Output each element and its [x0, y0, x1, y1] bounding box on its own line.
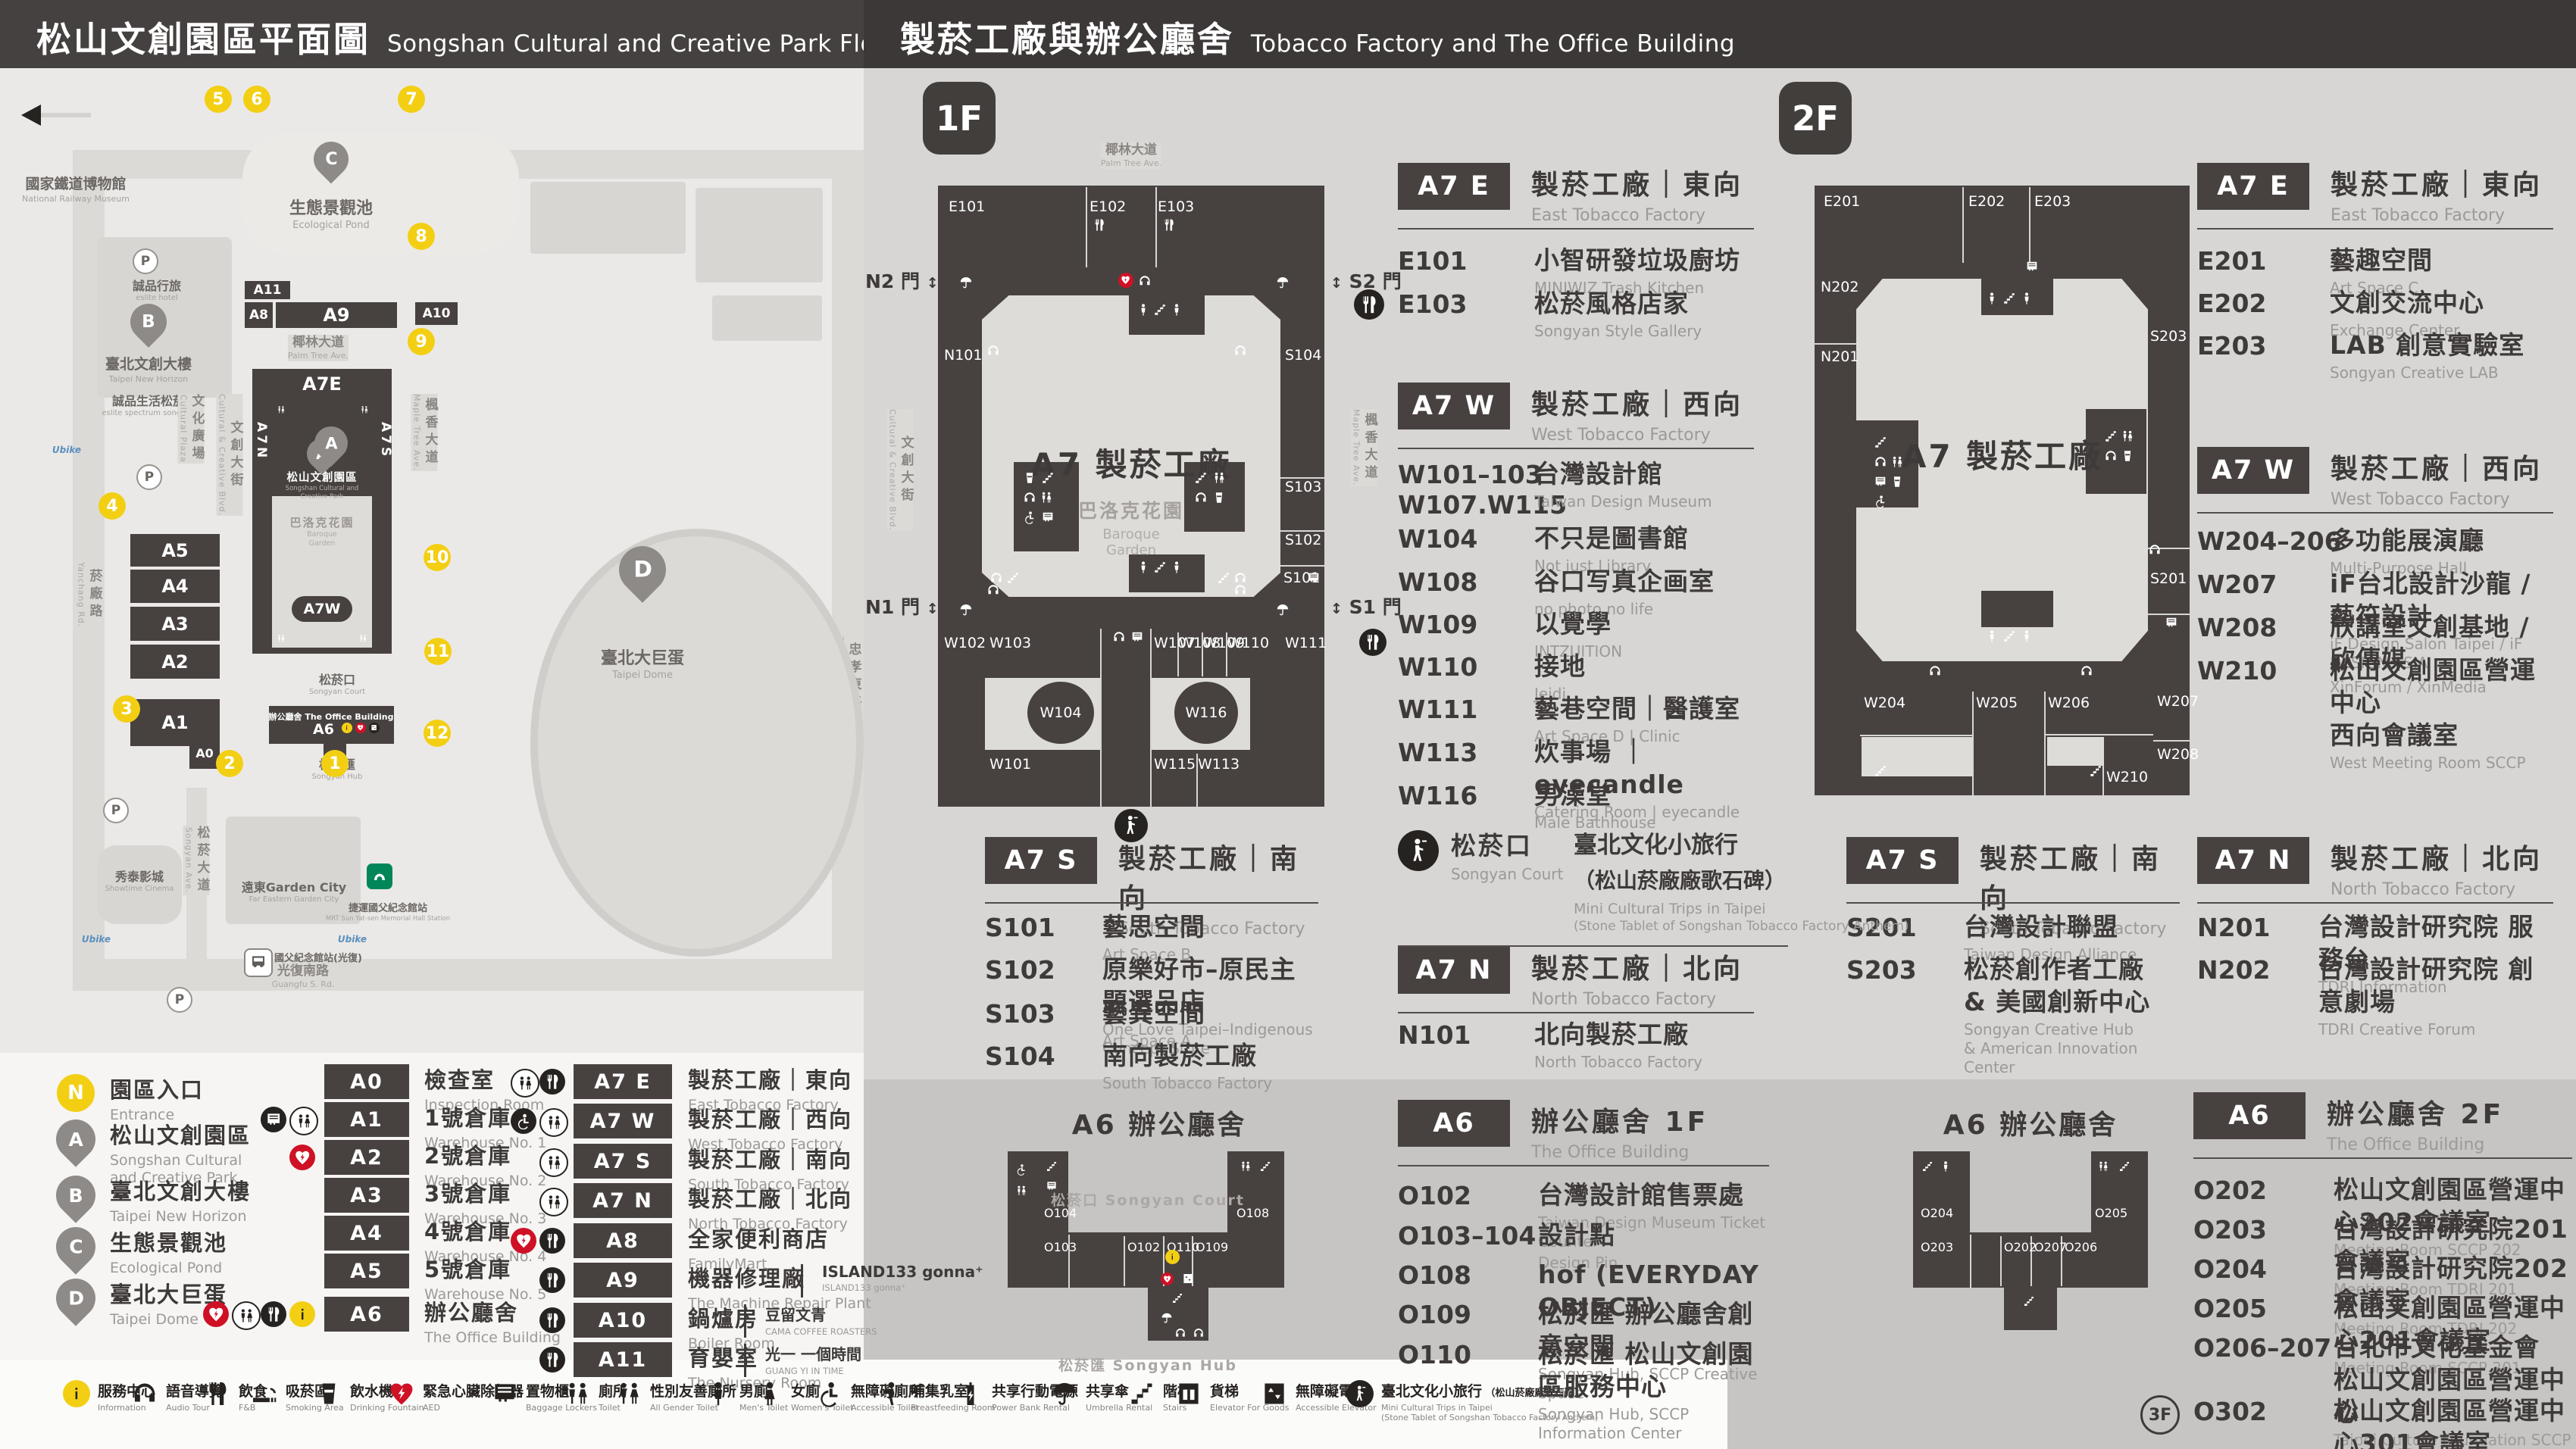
- stairs-icon: [1874, 436, 1887, 449]
- section-divider: [2197, 902, 2553, 904]
- plan-room-O206: O206: [2065, 1240, 2097, 1254]
- person-icon: [1985, 292, 1999, 305]
- plan-room-E202: E202: [1968, 193, 2005, 210]
- plan-divider: [2029, 187, 2030, 263]
- section-code: A7 N: [2197, 837, 2309, 884]
- fnb-icon: [1359, 629, 1386, 656]
- room-code: W108: [1398, 567, 1477, 598]
- plan-room-W206: W206: [2048, 695, 2090, 711]
- stairs-icon: [1259, 1160, 1271, 1173]
- plan-room-W104: W104: [1027, 682, 1094, 744]
- plan-room-W207: W207: [2157, 693, 2199, 710]
- section-title-en: West Tobacco Factory: [1531, 426, 1743, 445]
- room-code: O110: [1398, 1340, 1471, 1370]
- legend-code-A3: A3: [324, 1178, 409, 1213]
- plan-court: [2047, 737, 2104, 766]
- toilet-icon: [511, 1069, 539, 1098]
- locker-icon: [2165, 616, 2178, 629]
- section-title-en: West Tobacco Factory: [2331, 490, 2543, 509]
- legend-sub-brand: 光一 一個時間GUANG YI IN TIME: [765, 1342, 861, 1376]
- plan-room-W210: W210: [2106, 769, 2148, 785]
- legend-code-A2: A2: [324, 1140, 409, 1175]
- audio-icon: [131, 1380, 158, 1407]
- section-A6: A6辦公廳舍 1FThe Office BuildingO102台灣設計館售票處…: [1398, 1100, 1769, 1162]
- legend-sub-brand: ISLAND133 gonna⁺ISLAND133 gonna⁺: [822, 1263, 983, 1293]
- legend-code-A5: A5: [324, 1254, 409, 1288]
- legend-code-A7E: A7 E: [574, 1064, 672, 1099]
- accessible-icon: [1015, 1163, 1027, 1176]
- room-code: W113: [1398, 738, 1477, 768]
- plan-room-W102: W102: [944, 635, 986, 651]
- plan-room-N202: N202: [1821, 279, 1859, 295]
- plan-room-S103: S103: [1285, 479, 1321, 495]
- a6-plan-title: A6 辦公廳舍: [1072, 1103, 1246, 1142]
- aed-icon: [511, 1228, 536, 1254]
- plan-room-W111: W111: [1285, 635, 1327, 651]
- locker-icon: [1874, 475, 1887, 489]
- legend-pin-label: 園區入口Entrance: [110, 1073, 204, 1124]
- section-header: A7 N製菸工廠｜北向North Tobacco Factory: [1398, 947, 1754, 1009]
- section-title-zh: 製菸工廠｜西向: [2331, 447, 2543, 486]
- aed-icon: [289, 1145, 315, 1170]
- plan-divider: [1962, 187, 1964, 263]
- plan-divider: [1280, 565, 1324, 567]
- plan-room-O207: O207: [2034, 1240, 2067, 1254]
- songyan-court-name: 松菸口Songyan Court: [1451, 826, 1563, 883]
- section-A7E: A7 E製菸工廠｜東向East Tobacco FactoryE201藝趣空間A…: [2197, 163, 2553, 225]
- door-label-N2門: N2 門 ↕: [865, 267, 939, 294]
- smoke-icon: [251, 1380, 278, 1407]
- room-code: W208: [2197, 613, 2277, 643]
- section-title-zh: 製菸工廠｜北向: [1531, 947, 1743, 986]
- floor-badge-2F: 2F: [1779, 82, 1852, 155]
- room-code: N201: [2197, 913, 2271, 943]
- room-code: O108: [1398, 1260, 1471, 1291]
- info-icon: [1165, 1250, 1180, 1264]
- toilet-icon: [615, 1380, 642, 1407]
- fork-icon: [539, 1228, 565, 1254]
- room-code: W110: [1398, 652, 1477, 682]
- plan-room-W116: W116: [1174, 682, 1238, 744]
- door-label-S2門: ↕ S2 門: [1330, 267, 1402, 294]
- plan-divider: [1124, 1236, 1125, 1286]
- locker-icon: [261, 1107, 286, 1132]
- legend-code-A8: A8: [574, 1223, 672, 1258]
- stairs-icon: [1006, 571, 1020, 585]
- plan-room-S203: S203: [2150, 328, 2187, 345]
- legend-sub-divider: [801, 1264, 803, 1298]
- section-divider: [1398, 1012, 1754, 1013]
- audio-icon: [986, 583, 1000, 597]
- plan-room-O205: O205: [2095, 1206, 2127, 1220]
- room-code: E202: [2197, 289, 2266, 319]
- plan-divider: [1860, 735, 1972, 736]
- plan-room-O203: O203: [1921, 1240, 1953, 1254]
- room-label: 台灣設計研究院 創意劇場TDRI Creative Forum: [2318, 954, 2553, 1039]
- door-label-N1門: N1 門 ↕: [865, 592, 939, 620]
- section-header: A7 W製菸工廠｜西向West Tobacco Factory: [2197, 447, 2553, 509]
- audio-icon: [1112, 630, 1126, 644]
- stairs-icon: [1128, 1380, 1155, 1407]
- trip-icon: [1346, 1380, 1374, 1407]
- a6-plan-title: A6 辦公廳舍: [1943, 1103, 2118, 1142]
- women-icon: [756, 1380, 783, 1407]
- fork-icon: [539, 1347, 565, 1372]
- plan-divider: [1086, 187, 1087, 267]
- section-code: A7 E: [1398, 163, 1510, 210]
- room-code: O203: [2193, 1215, 2267, 1245]
- legend-code-A7N: A7 N: [574, 1183, 672, 1218]
- section-header: A6辦公廳舍 1FThe Office Building: [1398, 1100, 1769, 1162]
- water-icon: [1023, 471, 1036, 485]
- room-code: N101: [1398, 1020, 1471, 1051]
- aed-icon: [388, 1380, 415, 1407]
- stairs-icon: [2002, 629, 2016, 643]
- plan-divider: [1815, 343, 1856, 345]
- section-divider: [985, 902, 1318, 904]
- locker-icon: [1307, 571, 1321, 585]
- section-code: A6: [2193, 1092, 2306, 1139]
- section-title-en: The Office Building: [2327, 1135, 2504, 1154]
- audio-icon: [1233, 571, 1247, 585]
- section-A7S: A7 S製菸工廠｜南向South Tobacco FactoryS101藝思空間…: [985, 837, 1318, 938]
- room-code: S104: [985, 1041, 1055, 1072]
- room-code: S101: [985, 913, 1055, 943]
- room-code: O202: [2193, 1176, 2267, 1206]
- section-title-en: North Tobacco Factory: [1531, 990, 1743, 1009]
- room-code: S203: [1846, 955, 1917, 985]
- section-A7N: A7 N製菸工廠｜北向North Tobacco FactoryN101北向製菸…: [1398, 947, 1754, 1009]
- plan-divider: [1155, 187, 1157, 267]
- audio-icon: [989, 571, 1003, 585]
- room-code: W111: [1398, 695, 1477, 725]
- stairs-icon: [1153, 303, 1167, 317]
- elevator-icon: [1182, 1273, 1194, 1285]
- plan-divider: [2046, 734, 2153, 735]
- room-code: E101: [1398, 246, 1467, 276]
- toilet-icon: [564, 1380, 591, 1407]
- section-code: A7 E: [2197, 163, 2309, 210]
- plan-center-label: A7 製菸工廠: [1902, 431, 2102, 477]
- room-code: W109: [1398, 610, 1477, 640]
- legend-code-A11: A11: [574, 1342, 672, 1377]
- room-code: W204–206: [2197, 526, 2342, 557]
- section-header: A7 E製菸工廠｜東向East Tobacco Factory: [2197, 163, 2553, 225]
- water-icon: [1890, 475, 1904, 489]
- water-icon: [1212, 491, 1226, 504]
- section-divider: [1398, 228, 1754, 230]
- songyan-divider: [1398, 945, 1788, 947]
- section-title-zh: 製菸工廠｜南向: [1118, 837, 1318, 916]
- legend-sub-divider: [744, 1344, 746, 1377]
- room-code: O204: [2193, 1254, 2267, 1285]
- audio-icon: [1233, 583, 1247, 597]
- toilet-icon: [2121, 429, 2134, 443]
- plan-divider: [2148, 614, 2190, 615]
- plan-divider: [2153, 740, 2190, 742]
- plan-road-label: 椰林大道Palm Tree Ave.: [1101, 142, 1161, 169]
- section-header: A6辦公廳舍 2FThe Office Building: [2193, 1092, 2572, 1154]
- a6-hub-label: 松菸匯 Songyan Hub: [1058, 1354, 1237, 1375]
- room-code: W104: [1398, 524, 1477, 554]
- fork-icon: [204, 1380, 231, 1407]
- plan-room-W113: W113: [1198, 756, 1240, 773]
- info-icon: [63, 1380, 90, 1407]
- songyan-court-exit-icon: [1114, 809, 1148, 842]
- plan-room-S104: S104: [1285, 347, 1321, 364]
- stairs-icon: [1153, 561, 1167, 574]
- legend-pin-A: A: [56, 1120, 95, 1159]
- aed-icon: [1161, 1273, 1174, 1285]
- legend-code-A6: A6: [324, 1297, 409, 1332]
- stairs-icon: [2023, 1295, 2035, 1307]
- plan-room-W103: W103: [989, 635, 1031, 651]
- section-header: A7 W製菸工廠｜西向West Tobacco Factory: [1398, 383, 1754, 445]
- accessible-icon: [1874, 495, 1887, 508]
- umbrella-icon: [959, 276, 973, 289]
- row-fork-icon: [1354, 289, 1384, 320]
- audio-icon: [1194, 491, 1208, 504]
- audio-icon: [2148, 543, 2162, 557]
- room-code: W207: [2197, 570, 2277, 600]
- office-plan-1f: A6 辦公廳舍O104O103O102O110O109O108松菸口 Songy…: [1000, 1100, 1318, 1372]
- floor-3f-badge: 3F: [2140, 1395, 2180, 1435]
- toilet-icon: [1890, 455, 1904, 469]
- person-icon: [1985, 629, 1999, 643]
- section-code: A6: [1398, 1100, 1510, 1147]
- umbrella-icon: [1051, 1380, 1078, 1407]
- room-label: 松山文創園區營運中心301會議室Meeting Room SCCP 301: [2334, 1395, 2572, 1449]
- section-title-zh: 製菸工廠｜東向: [2331, 163, 2543, 202]
- floor-plan-1f: W104W116E101E102E103N101S104S103S102S101…: [938, 182, 1324, 810]
- plan-room-W208: W208: [2157, 746, 2199, 763]
- fork-icon: [1162, 218, 1176, 232]
- accessible-icon: [1023, 511, 1036, 524]
- legend-code-A0: A0: [324, 1064, 409, 1099]
- fork-icon: [1093, 218, 1106, 232]
- legend-pin-label: 臺北文創大樓Taipei New Horizon: [110, 1174, 251, 1226]
- toilet-icon: [539, 1108, 568, 1137]
- info-icon: [289, 1301, 315, 1327]
- legend-code-A7W: A7 W: [574, 1104, 672, 1138]
- plan-room-W110: W110: [1227, 635, 1269, 651]
- plan-divider: [1150, 629, 1152, 807]
- section-title-zh: 製菸工廠｜南向: [1980, 837, 2180, 916]
- room-code: N202: [2197, 955, 2271, 985]
- toilet-icon: [539, 1148, 568, 1177]
- locker-icon: [491, 1380, 518, 1407]
- plan-room-S102: S102: [1285, 532, 1321, 548]
- person-icon: [1170, 561, 1183, 574]
- toilet-icon: [1039, 491, 1053, 504]
- plan-room-W101: W101: [989, 756, 1031, 773]
- legend-pin-label: 生態景觀池Ecological Pond: [110, 1226, 227, 1277]
- plan-room-W204: W204: [1864, 695, 1905, 711]
- legend-code-A4: A4: [324, 1216, 409, 1251]
- aed-icon: [203, 1301, 229, 1327]
- plan-room-S201: S201: [2150, 570, 2187, 587]
- stairs-icon: [2104, 429, 2118, 443]
- plan-alcove: [1981, 591, 2053, 627]
- legend-code-A9: A9: [574, 1263, 672, 1298]
- water-icon: [315, 1380, 342, 1407]
- aed-icon: [1118, 273, 1133, 288]
- stairs-icon: [1921, 1160, 1934, 1173]
- section-title-en: North Tobacco Factory: [2331, 880, 2543, 899]
- room-label: 男澡堂Male Bathhouse: [1534, 779, 1656, 832]
- locker-icon: [2025, 260, 2039, 273]
- floor-plan-2f: E201E202E203N202N201S203S201W204W205W206…: [1815, 170, 2190, 807]
- elevator-icon: [1261, 1380, 1288, 1407]
- room-label: 松菸風格店家Songyan Style Gallery: [1534, 288, 1702, 341]
- stairs-icon: [1041, 471, 1055, 485]
- room-label: LAB 創意實驗室Songyan Creative LAB: [2330, 329, 2524, 383]
- toilet-icon: [1240, 1160, 1252, 1173]
- plan-room-E102: E102: [1089, 198, 1126, 215]
- section-divider: [2197, 228, 2553, 230]
- locker-icon: [1041, 511, 1055, 524]
- accessible-icon: [816, 1380, 843, 1407]
- person-icon: [1940, 1160, 1952, 1173]
- plan-divider: [1970, 1235, 1971, 1288]
- legend-code-A10: A10: [574, 1303, 672, 1338]
- section-header: A7 E製菸工廠｜東向East Tobacco Factory: [1398, 163, 1754, 225]
- section-divider: [1398, 448, 1754, 449]
- section-title-zh: 辦公廳舍 2F: [2327, 1092, 2504, 1132]
- plan-room-O109: O109: [1196, 1240, 1228, 1254]
- section-divider: [1398, 1165, 1769, 1166]
- person-icon: [1170, 303, 1183, 317]
- plan-room-W115: W115: [1154, 756, 1196, 773]
- section-divider: [2193, 1157, 2572, 1159]
- fork-icon: [539, 1267, 565, 1293]
- audio-icon: [1193, 1327, 1205, 1339]
- audio-icon: [2104, 449, 2118, 463]
- toilet-icon: [1015, 1185, 1027, 1197]
- toilet-icon: [232, 1301, 261, 1330]
- section-title-zh: 製菸工廠｜北向: [2331, 837, 2543, 876]
- toilet-icon: [539, 1188, 568, 1216]
- audio-icon: [1928, 664, 1942, 678]
- a6-court-label: 松菸口 Songyan Court: [1051, 1189, 1245, 1210]
- fork-icon: [539, 1307, 565, 1333]
- plan-divider: [2044, 692, 2046, 795]
- room-code: O109: [1398, 1300, 1471, 1330]
- person-icon: [2020, 292, 2034, 305]
- legend-sub-brand: 豆留文青CAMA COFFEE ROASTERS: [765, 1303, 877, 1337]
- plan-divider: [2102, 766, 2104, 795]
- section-code: A7 W: [1398, 383, 1510, 429]
- section-title-zh: 製菸工廠｜西向: [1531, 383, 1743, 422]
- plan-room-O202: O202: [2004, 1240, 2037, 1254]
- stairs-icon: [1171, 1292, 1183, 1304]
- plan-room-E203: E203: [2034, 193, 2071, 210]
- office-plan-2f: A6 辦公廳舍O204O203O202O207O206O205: [1871, 1100, 2190, 1372]
- umbrella-icon: [959, 603, 973, 617]
- legend-sub-divider: [744, 1304, 746, 1338]
- person-icon: [705, 1380, 732, 1407]
- plan-room-O204: O204: [1921, 1206, 1953, 1220]
- plan-room-E101: E101: [949, 198, 985, 215]
- room-code: E203: [2197, 331, 2266, 361]
- legend-code-A7S: A7 S: [574, 1144, 672, 1179]
- umbrella-icon: [1276, 276, 1290, 289]
- locker-icon: [1130, 630, 1144, 644]
- section-title-en: East Tobacco Factory: [2331, 206, 2543, 225]
- audio-icon: [1023, 491, 1036, 504]
- plan-road-label: 楓香大道Maple Tree Ave.: [1351, 409, 1377, 486]
- room-code: O206–207: [2193, 1333, 2331, 1363]
- section-header: A7 N製菸工廠｜北向North Tobacco Factory: [2197, 837, 2553, 899]
- room-code: W210: [2197, 656, 2277, 686]
- stairs-icon: [1046, 1160, 1058, 1173]
- plan-room-N101: N101: [944, 347, 982, 364]
- section-title-zh: 辦公廳舍 1F: [1531, 1100, 1708, 1139]
- section-title-en: East Tobacco Factory: [1531, 206, 1743, 225]
- room-code: O302: [2193, 1397, 2267, 1427]
- breastfeed-icon: [876, 1380, 903, 1407]
- section-divider: [2197, 512, 2553, 514]
- person-icon: [1136, 561, 1150, 574]
- room-code: E201: [2197, 246, 2266, 276]
- toilet-icon: [2097, 1160, 2109, 1173]
- room-code: W116: [1398, 781, 1477, 811]
- room-code: O102: [1398, 1181, 1471, 1211]
- section-title-zh: 製菸工廠｜東向: [1531, 163, 1743, 202]
- room-label: 南向製菸工廠South Tobacco Factory: [1102, 1040, 1272, 1093]
- plan-room-E103: E103: [1158, 198, 1194, 215]
- section-A7W: A7 W製菸工廠｜西向West Tobacco FactoryW101–103W…: [1398, 383, 1754, 445]
- audio-icon: [1138, 274, 1152, 288]
- fork-icon: [261, 1301, 286, 1327]
- songyan-court-desc: 臺北文化小旅行（松山菸廠廠歌石碑）Mini Cultural Trips in …: [1574, 826, 1909, 934]
- room-code: S103: [985, 999, 1055, 1029]
- plan-road-label: 文創大街Cultural & Creative Blvd.: [887, 409, 914, 531]
- plan-room-O103: O103: [1044, 1240, 1077, 1254]
- room-label: 松菸創作者工廠& 美國創新中心Songyan Creative Hub& Ame…: [1964, 954, 2180, 1077]
- section-A7N: A7 N製菸工廠｜北向North Tobacco FactoryN201台灣設計…: [2197, 837, 2553, 899]
- water-icon: [2121, 449, 2134, 463]
- room-code: O205: [2193, 1294, 2267, 1324]
- stairs-icon: [1874, 764, 1887, 778]
- fork-icon: [539, 1069, 565, 1095]
- plan-divider: [2000, 1236, 2002, 1286]
- plan-divider: [1972, 692, 1974, 795]
- room-code: O103–104: [1398, 1221, 1536, 1251]
- plan-room-W205: W205: [1976, 695, 2018, 711]
- door-label-S1門: ↕ S1 門: [1330, 592, 1402, 620]
- floor-plan-poster: 松山文創園區平面圖 Songshan Cultural and Creative…: [0, 0, 2576, 1449]
- legend-pin-B: B: [56, 1176, 95, 1215]
- songyan-court-icon: [1398, 830, 1439, 871]
- person-icon: [1136, 303, 1150, 317]
- toilet-icon: [289, 1107, 318, 1135]
- stairs-icon: [2089, 764, 2102, 778]
- floor-badge-1F: 1F: [923, 82, 996, 155]
- stairs-icon: [1194, 471, 1208, 485]
- umbrella-icon: [1276, 603, 1290, 617]
- plan-room-N201: N201: [1821, 348, 1859, 365]
- plan-room-E201: E201: [1824, 193, 1860, 210]
- legend-pin-D: D: [56, 1279, 95, 1318]
- room-label: 北向製菸工廠North Tobacco Factory: [1534, 1019, 1702, 1072]
- section-A7W: A7 W製菸工廠｜西向West Tobacco FactoryW204–206多…: [2197, 447, 2553, 509]
- power-icon: [957, 1380, 984, 1407]
- room-code: S102: [985, 955, 1055, 985]
- section-A6: A6辦公廳舍 2FThe Office BuildingO202松山文創園區營運…: [2193, 1092, 2572, 1154]
- plan-dark: [2004, 1288, 2057, 1330]
- stairs-icon: [1217, 571, 1230, 585]
